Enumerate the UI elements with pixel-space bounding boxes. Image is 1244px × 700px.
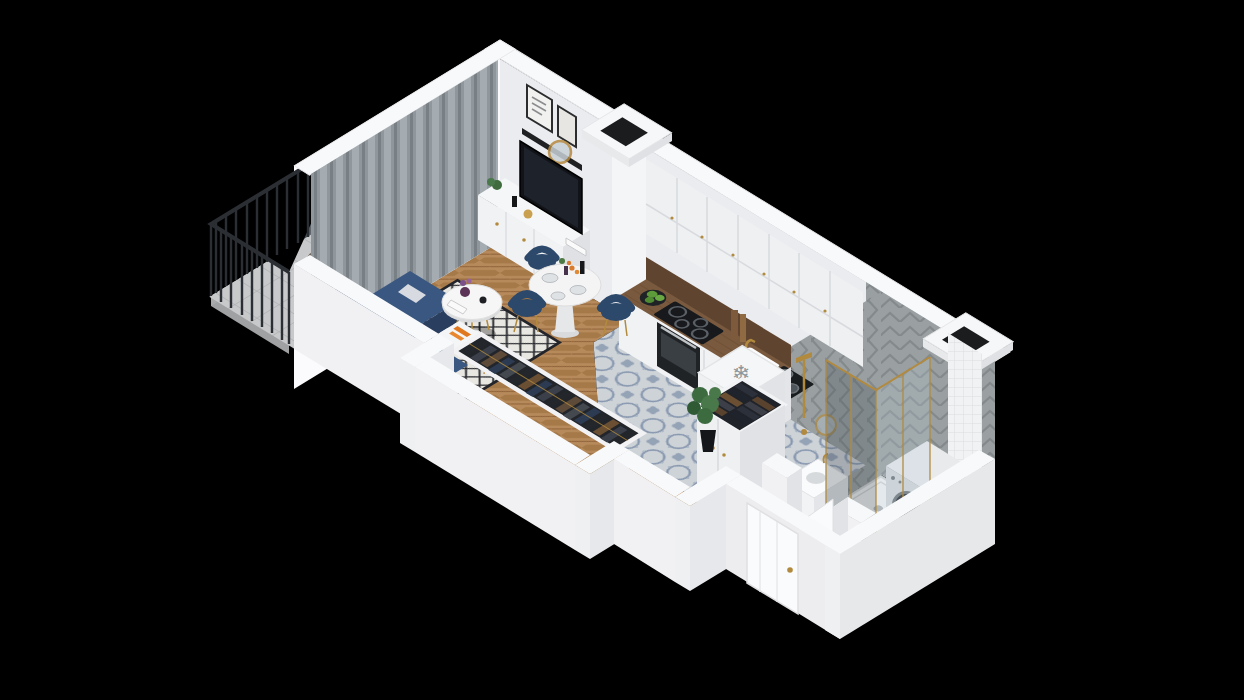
bottle <box>580 261 585 274</box>
floor-plan-stage: ❄ <box>0 0 1244 700</box>
vase <box>564 266 568 275</box>
entrance-door-handle <box>787 567 793 573</box>
shower-mixer <box>801 429 807 435</box>
cutting-board <box>731 310 738 340</box>
vase <box>460 287 470 297</box>
cutting-board <box>740 314 746 342</box>
round-mirror <box>549 141 571 163</box>
plate <box>570 286 586 295</box>
plate <box>542 274 558 283</box>
floor-plan-3d-render: ❄ <box>0 0 1244 700</box>
plate <box>551 292 565 300</box>
